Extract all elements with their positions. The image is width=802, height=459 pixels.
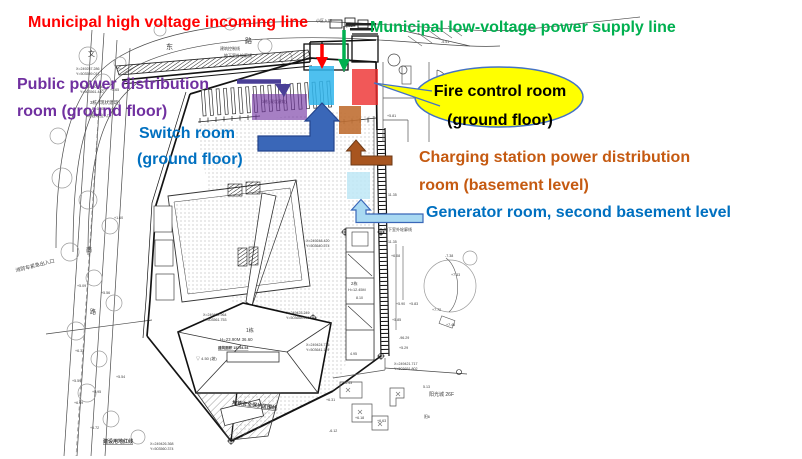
public-power-room-highlight xyxy=(252,94,307,120)
fire-control-label-line1: Fire control room xyxy=(413,77,587,106)
charging-room-label-line1: Charging station power distribution xyxy=(419,149,690,167)
charging-room-label-line2: room (basement level) xyxy=(419,177,589,195)
generator-room-highlight xyxy=(347,172,370,199)
annotated-site-plan: 文东路南路消防车紧急出入口建设用地红线地铁安全保护区围线建筑控制线地下室外轮廓线… xyxy=(0,0,802,459)
generator-room-label: Generator room, second basement level xyxy=(426,204,731,222)
low-voltage-label: Municipal low-voltage power supply line xyxy=(370,19,676,37)
high-voltage-label: Municipal high voltage incoming line xyxy=(28,14,308,32)
charging-room-arrow xyxy=(347,140,393,165)
public-power-label-line1: Public power distribution xyxy=(17,76,209,94)
switch-room-label-line1: Switch room xyxy=(139,125,235,143)
fire-control-label: Fire control room (ground floor) xyxy=(413,77,587,135)
fire-control-room-highlight xyxy=(352,69,378,105)
low-voltage-arrow xyxy=(338,30,350,72)
high-voltage-arrow xyxy=(316,44,328,69)
generator-room-arrow xyxy=(352,200,424,223)
switch-room-label-line2: (ground floor) xyxy=(137,151,243,169)
public-power-label-line2: room (ground floor) xyxy=(17,103,167,121)
charging-room-highlight xyxy=(339,106,361,134)
fire-control-label-line2: (ground floor) xyxy=(413,106,587,135)
switch-room-highlight xyxy=(309,66,334,105)
annotation-overlay xyxy=(0,0,802,459)
